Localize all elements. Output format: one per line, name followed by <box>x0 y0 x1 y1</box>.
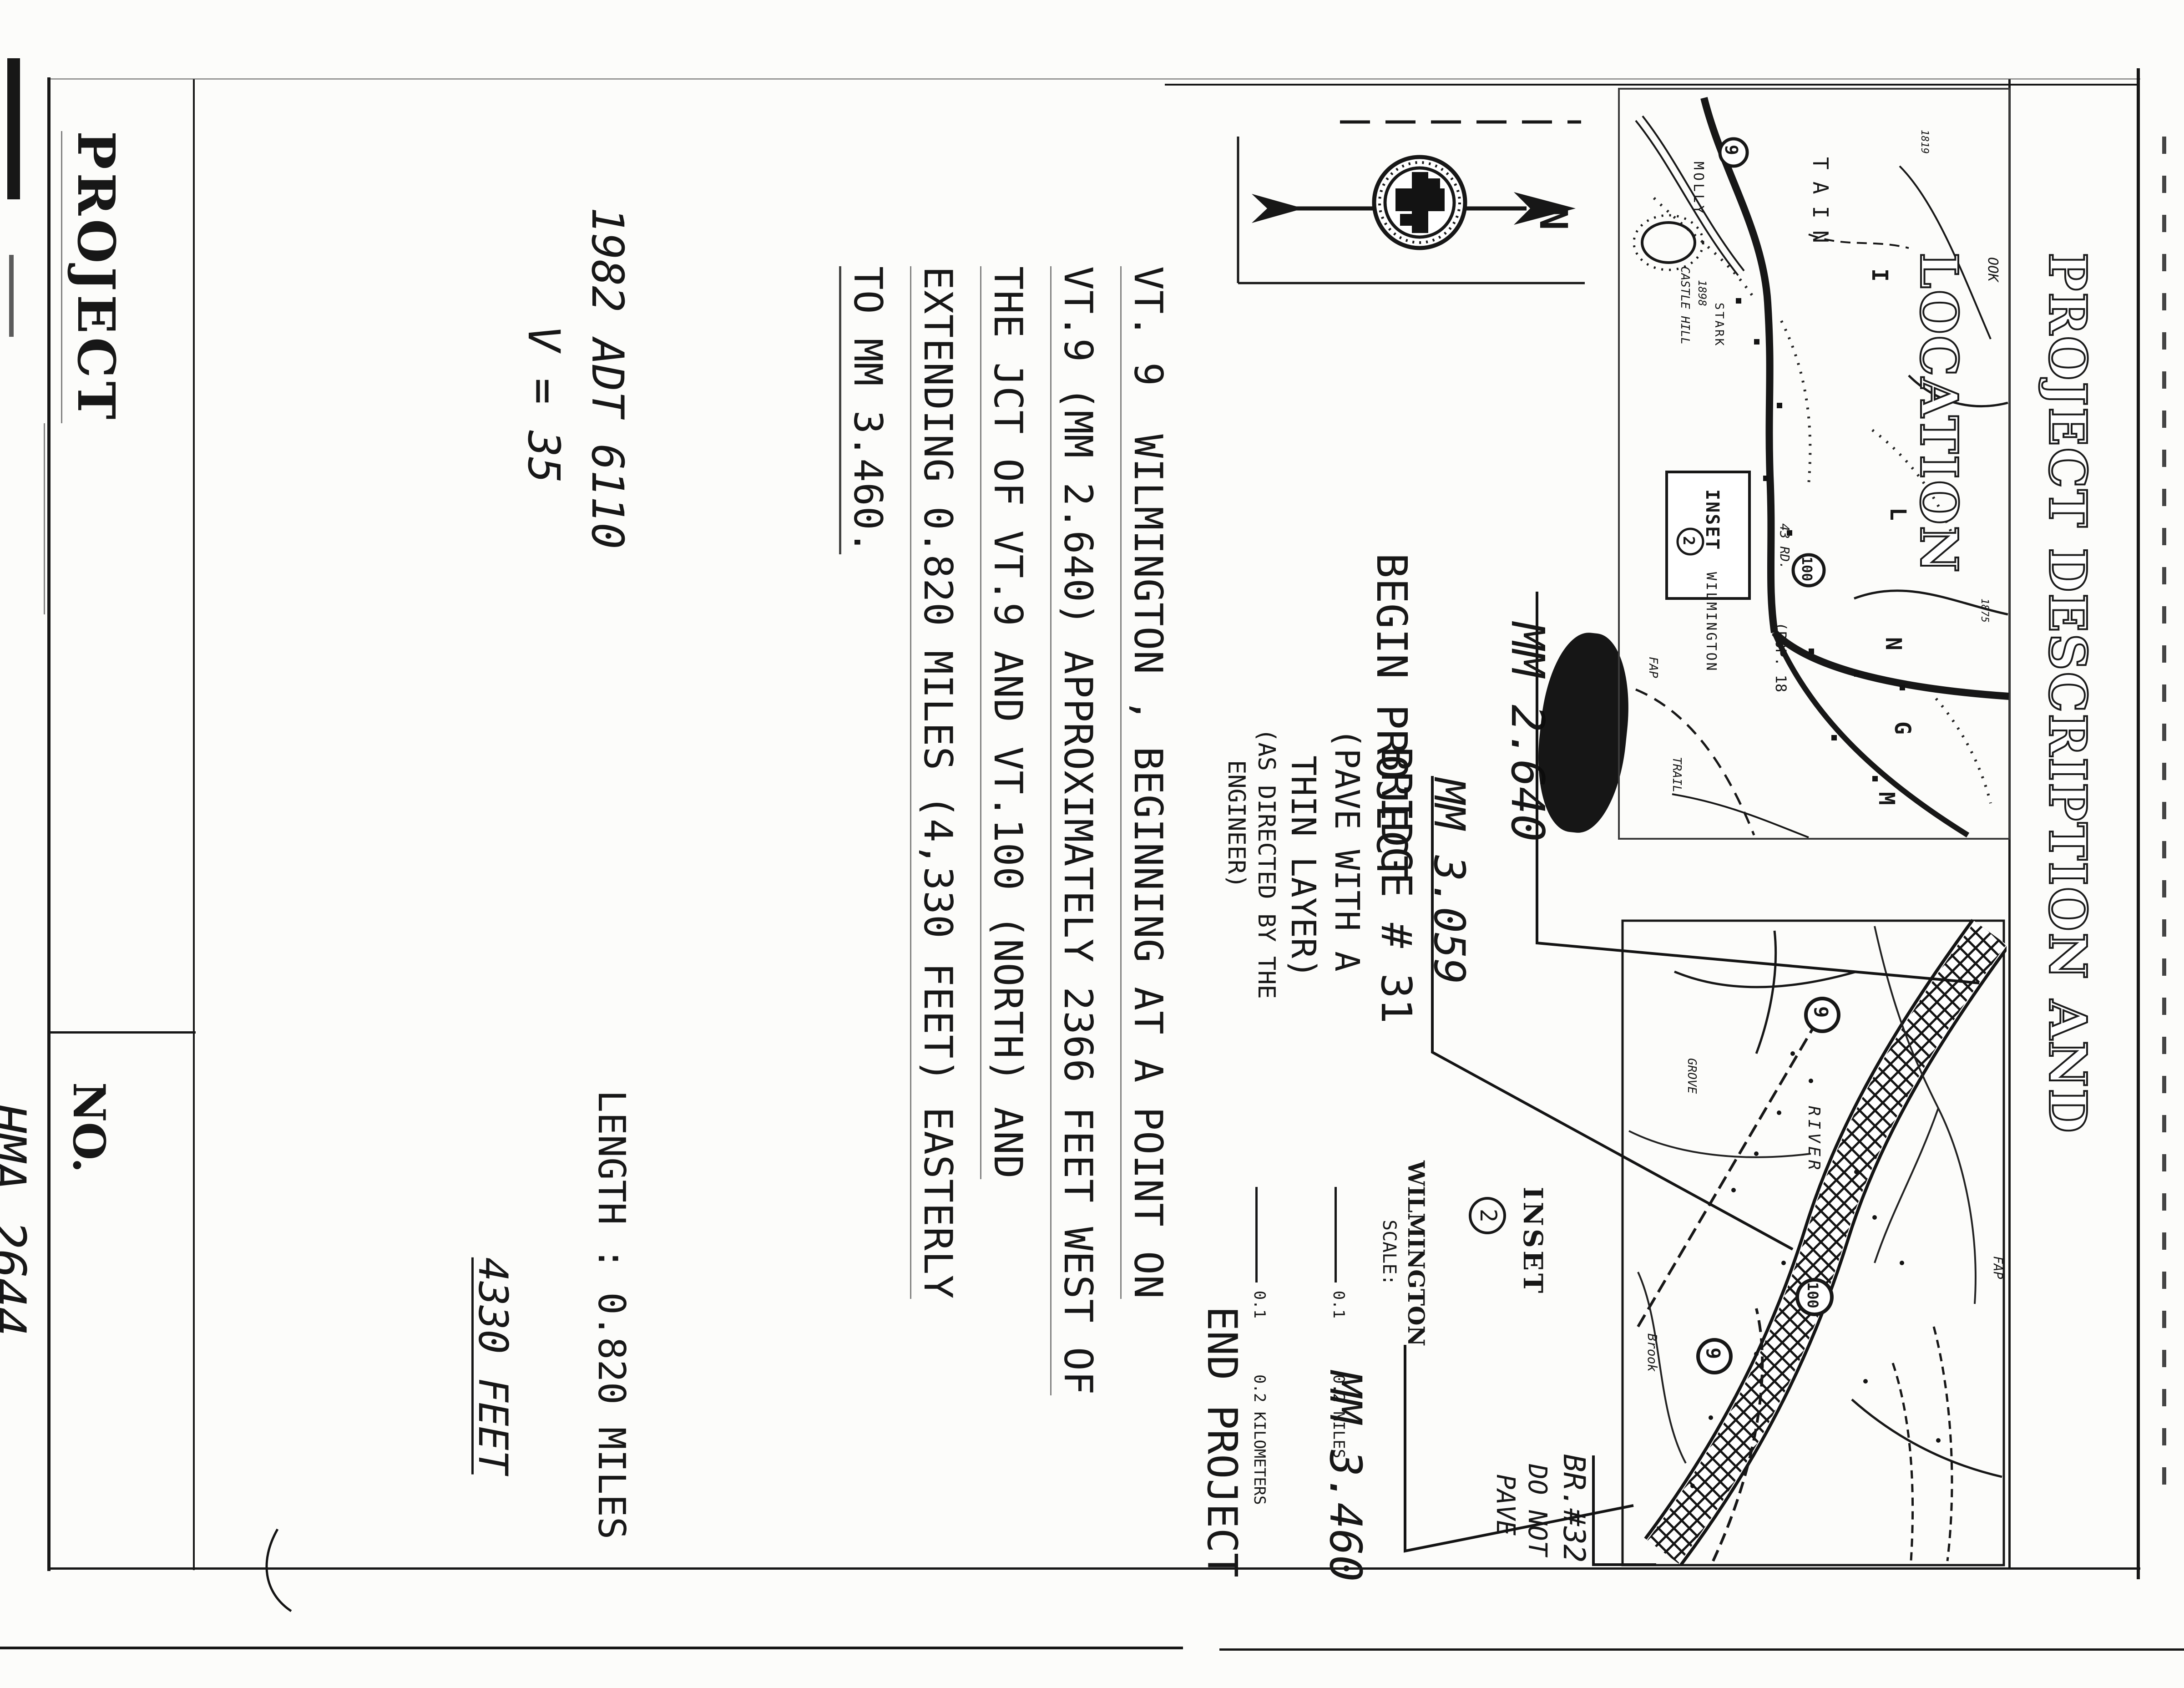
bridge31-leader-line <box>1432 776 1793 1249</box>
stray-pen-mark <box>267 1529 291 1611</box>
leader-lines <box>0 0 2184 1688</box>
br32-bracket-line <box>1593 1455 1656 1565</box>
sheet-title-strip: PROJECT DESCRIPTION AND LOCATION <box>2010 253 2124 1427</box>
begin-leader-line <box>1537 592 1979 983</box>
scanned-plan-sheet: PROJECT WILMINGTON NO. HMA 2644 SHEET3OF… <box>0 0 2184 1688</box>
end-leader-line <box>1405 1345 1633 1551</box>
